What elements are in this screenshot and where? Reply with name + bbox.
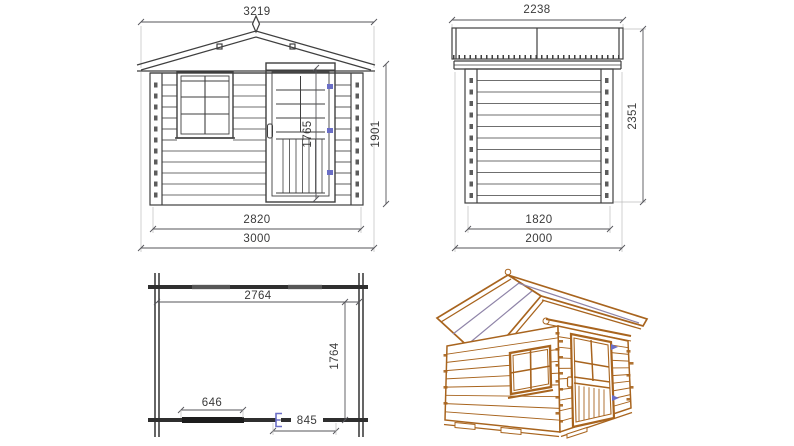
dim-text-646: 646 bbox=[202, 397, 222, 409]
door-hinges bbox=[327, 84, 333, 175]
dim-overall-depth: 2238 bbox=[449, 4, 626, 23]
floor-plan-view: 2764 1764 646 845 bbox=[130, 268, 400, 446]
log-siding-lines bbox=[162, 85, 351, 195]
front-elevation-drawing: 3219 bbox=[128, 0, 408, 260]
door-3d bbox=[568, 334, 620, 427]
plan-back-wall bbox=[148, 285, 368, 290]
drawing-canvas: 3219 bbox=[0, 0, 794, 446]
dim-overall-base: 3000 bbox=[138, 233, 377, 251]
front-wall bbox=[150, 73, 363, 205]
dim-text-2000: 2000 bbox=[525, 233, 552, 245]
dim-inner-depth: 1764 bbox=[329, 299, 348, 423]
front-door bbox=[266, 63, 335, 202]
dim-wall-height: 1901 bbox=[370, 61, 389, 207]
dim-text-1764: 1764 bbox=[329, 342, 341, 369]
dim-text-2238: 2238 bbox=[523, 4, 550, 16]
dim-text-1765: 1765 bbox=[302, 120, 314, 147]
dim-overall-base: 2000 bbox=[452, 233, 625, 251]
log-siding-lines bbox=[477, 81, 601, 196]
dim-text-2351: 2351 bbox=[627, 102, 639, 129]
roof-finial bbox=[253, 16, 260, 32]
dim-text-3219: 3219 bbox=[243, 6, 270, 18]
side-wall bbox=[465, 69, 613, 203]
dim-wall-width: 2820 bbox=[150, 214, 364, 232]
front-elevation-view: 3219 bbox=[128, 0, 408, 260]
floor-plan-drawing: 2764 1764 646 845 bbox=[130, 268, 400, 446]
roof-side bbox=[452, 28, 623, 69]
dim-door-height: 1765 bbox=[302, 65, 319, 202]
dim-wall-depth: 1820 bbox=[465, 214, 613, 232]
gable-roof bbox=[137, 16, 375, 73]
side-elevation-drawing: 2238 bbox=[438, 0, 670, 260]
window-3d bbox=[508, 346, 553, 398]
dim-text-1820: 1820 bbox=[525, 214, 552, 226]
dim-overall-height: 2351 bbox=[627, 26, 646, 205]
dim-window-width: 646 bbox=[178, 397, 246, 418]
dim-text-1901: 1901 bbox=[370, 120, 382, 147]
perspective-drawing bbox=[415, 262, 685, 446]
dim-text-845: 845 bbox=[297, 415, 317, 427]
dim-door-width: 845 bbox=[270, 414, 339, 435]
dim-inner-width: 2764 bbox=[154, 290, 362, 305]
front-window bbox=[175, 72, 235, 138]
perspective-view bbox=[415, 262, 685, 446]
side-elevation-view: 2238 bbox=[438, 0, 670, 260]
dim-text-3000: 3000 bbox=[243, 233, 270, 245]
door-handle bbox=[568, 377, 573, 387]
dim-text-2764: 2764 bbox=[244, 290, 271, 302]
roof-finial bbox=[505, 269, 511, 275]
dim-text-2820: 2820 bbox=[243, 214, 270, 226]
